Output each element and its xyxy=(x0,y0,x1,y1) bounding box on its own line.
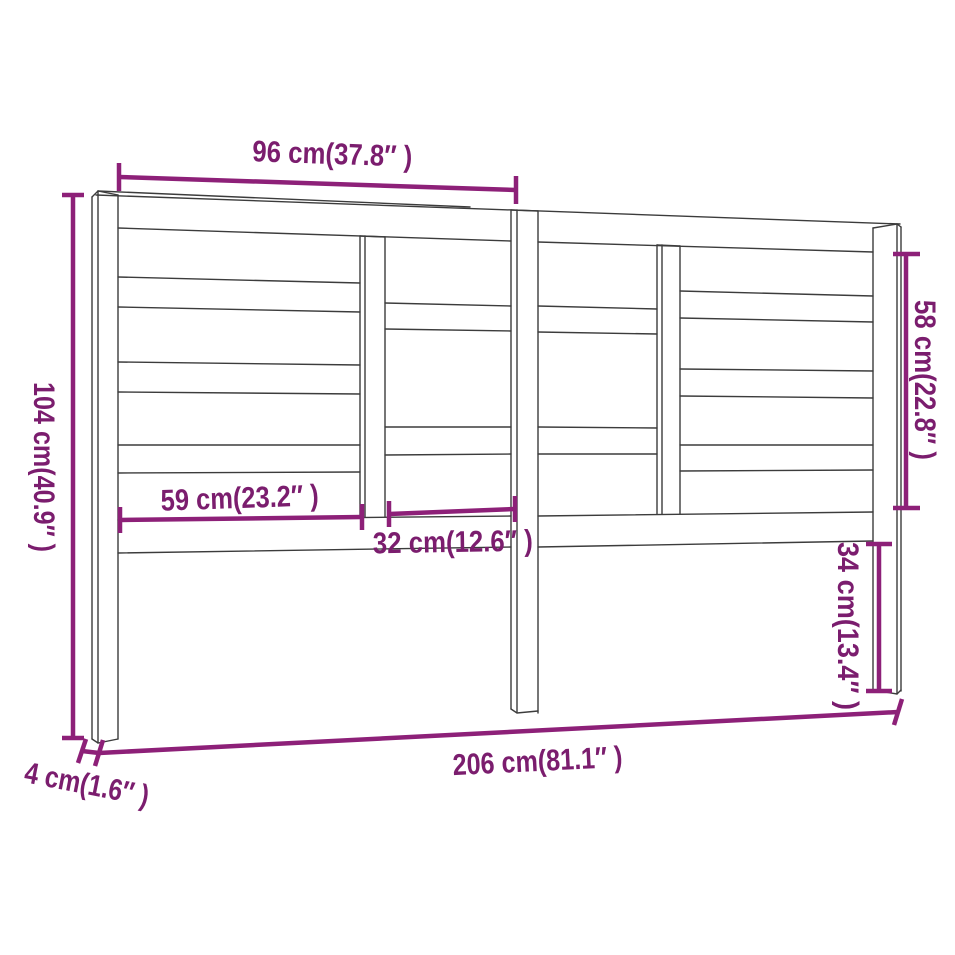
dim-label-upper-right-height: 58 cm(22.8″ ) xyxy=(908,300,941,460)
diagram-canvas: 96 cm(37.8″ ) 104 cm(40.9″ ) 58 cm(22.8″… xyxy=(0,0,955,955)
dim-label-left-section-width: 59 cm(23.2″ ) xyxy=(160,479,319,517)
dim-label-leg-below-rail-height: 34 cm(13.4″ ) xyxy=(831,542,864,710)
dim-label-overall-height: 104 cm(40.9″ ) xyxy=(27,382,60,552)
dim-label-top-width: 96 cm(37.8″ ) xyxy=(252,135,413,174)
dim-label-middle-section-width: 32 cm(12.6″ ) xyxy=(373,525,534,561)
headboard-diagram: 96 cm(37.8″ ) 104 cm(40.9″ ) 58 cm(22.8″… xyxy=(0,0,955,955)
